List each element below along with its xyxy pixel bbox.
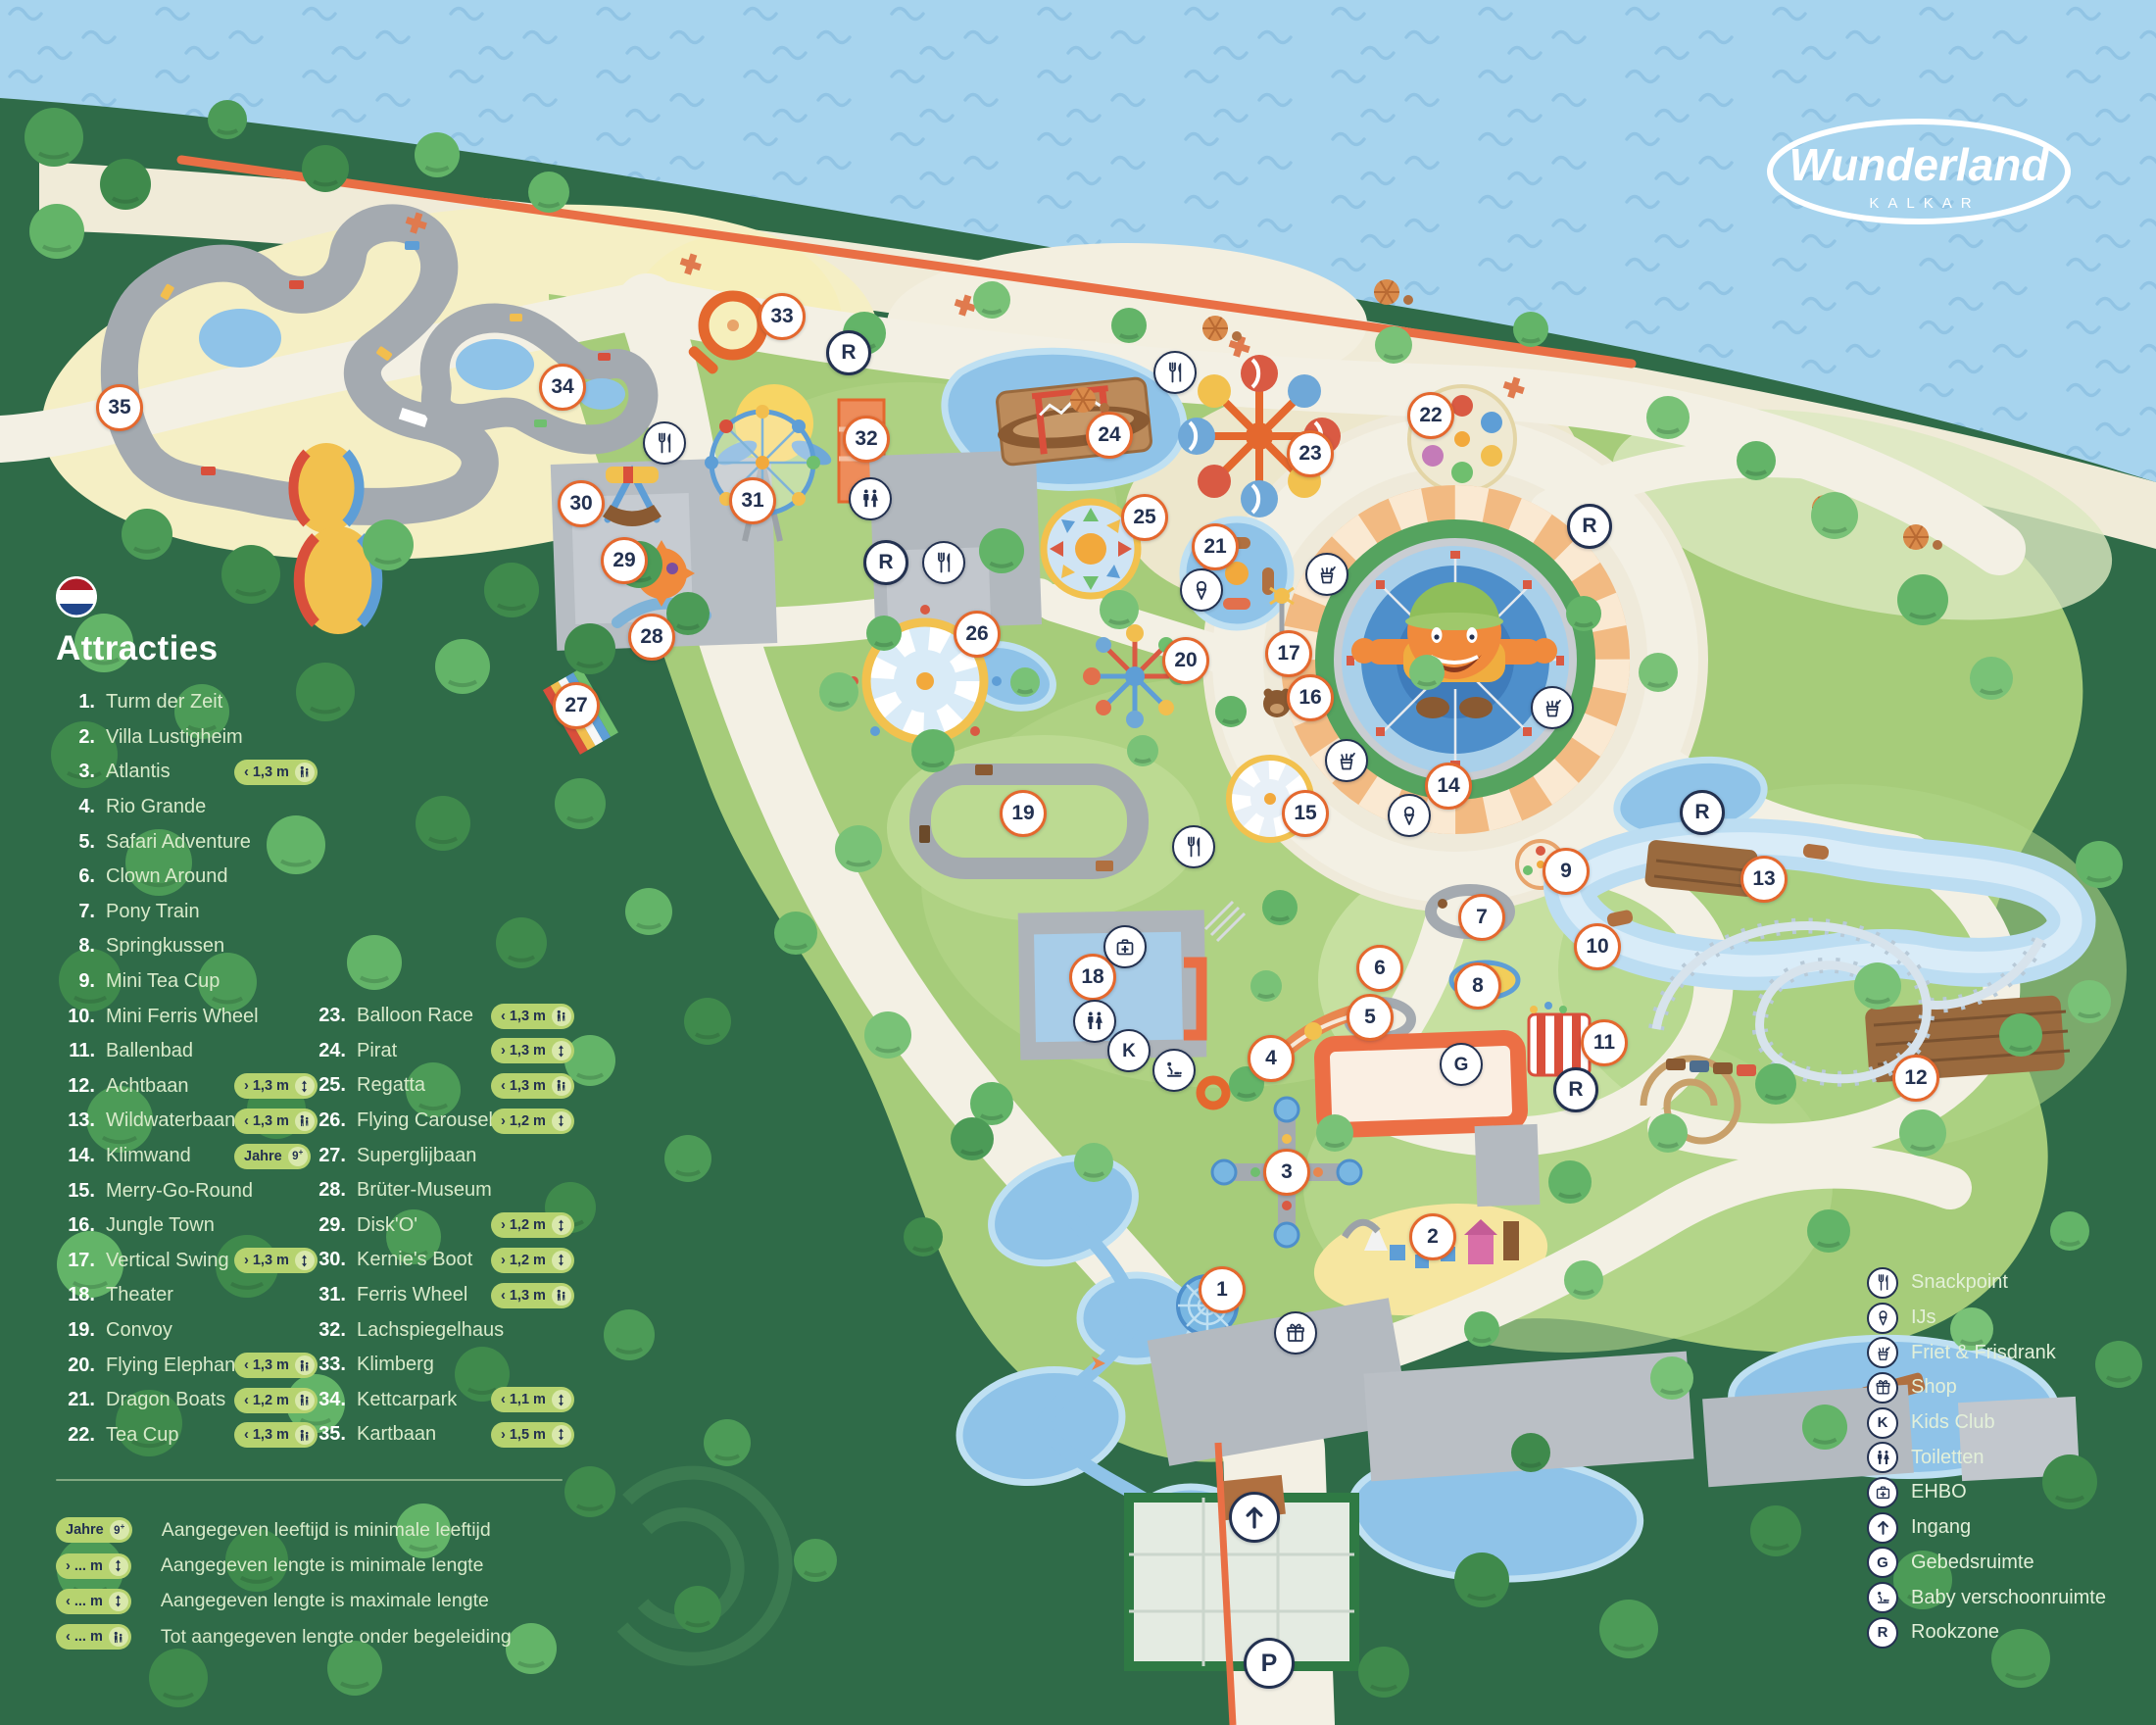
map-marker-attraction-34: 34: [539, 364, 586, 411]
map-marker-baby: [1152, 1049, 1196, 1092]
map-marker-attraction-12: 12: [1892, 1055, 1939, 1102]
map-marker-parking: P: [1244, 1638, 1295, 1689]
map-marker-attraction-8: 8: [1454, 962, 1501, 1010]
park-map-page: Wunderland KALKAR Attracties 1.Turm der …: [0, 0, 2156, 1725]
map-marker-attraction-3: 3: [1263, 1149, 1310, 1196]
map-marker-attraction-4: 4: [1248, 1035, 1295, 1082]
map-marker-attraction-2: 2: [1409, 1213, 1456, 1260]
map-marker-ice: [1388, 794, 1431, 837]
map-marker-snackpoint: [1172, 825, 1215, 868]
map-marker-fries: [1531, 686, 1574, 729]
map-marker-attraction-24: 24: [1086, 412, 1133, 459]
map-marker-entrance: [1229, 1492, 1280, 1543]
map-marker-fries: [1305, 553, 1348, 596]
map-marker-smoking-1: R: [826, 330, 871, 375]
map-marker-prayer: G: [1440, 1043, 1483, 1086]
map-marker-attraction-11: 11: [1581, 1019, 1628, 1066]
map-marker-attraction-1: 1: [1199, 1266, 1246, 1313]
map-marker-attraction-6: 6: [1356, 945, 1403, 992]
map-marker-attraction-25: 25: [1121, 494, 1168, 541]
map-marker-shop: [1274, 1311, 1317, 1355]
map-marker-attraction-21: 21: [1192, 523, 1239, 570]
map-marker-ice: [1180, 568, 1223, 612]
map-marker-attraction-33: 33: [759, 293, 806, 340]
map-marker-attraction-28: 28: [628, 614, 675, 661]
map-marker-attraction-26: 26: [954, 611, 1001, 658]
map-marker-attraction-7: 7: [1458, 894, 1505, 941]
map-marker-smoking-4: R: [1553, 1067, 1598, 1112]
map-marker-attraction-17: 17: [1265, 630, 1312, 677]
map-marker-kidsclub: K: [1107, 1029, 1151, 1072]
map-marker-attraction-31: 31: [729, 477, 776, 524]
map-marker-attraction-15: 15: [1282, 790, 1329, 837]
map-marker-smoking-5: R: [863, 540, 908, 585]
map-marker-snackpoint: [922, 541, 965, 584]
map-marker-attraction-35: 35: [96, 384, 143, 431]
map-marker-attraction-13: 13: [1740, 856, 1788, 903]
map-marker-attraction-5: 5: [1347, 994, 1394, 1041]
map-marker-attraction-22: 22: [1407, 392, 1454, 439]
map-marker-ehbo: [1103, 925, 1147, 968]
map-marker-attraction-30: 30: [558, 480, 605, 527]
map-marker-toilets: [1073, 1000, 1116, 1043]
map-marker-attraction-19: 19: [1000, 790, 1047, 837]
map-marker-toilets: [849, 477, 892, 520]
map-marker-snackpoint: [643, 421, 686, 465]
map-marker-attraction-20: 20: [1162, 637, 1209, 684]
map-marker-smoking-3: R: [1680, 790, 1725, 835]
map-marker-attraction-10: 10: [1574, 923, 1621, 970]
map-marker-fries: [1325, 739, 1368, 782]
map-marker-layer: 1234567891011121314151617181920212223242…: [0, 0, 2156, 1725]
map-marker-attraction-23: 23: [1287, 430, 1334, 477]
map-marker-attraction-32: 32: [843, 416, 890, 463]
map-marker-snackpoint: [1153, 351, 1197, 394]
map-marker-attraction-16: 16: [1287, 674, 1334, 721]
map-marker-attraction-27: 27: [553, 682, 600, 729]
map-marker-attraction-9: 9: [1543, 848, 1590, 895]
map-marker-attraction-29: 29: [601, 537, 648, 584]
map-marker-attraction-14: 14: [1425, 763, 1472, 810]
map-marker-smoking-2: R: [1567, 504, 1612, 549]
